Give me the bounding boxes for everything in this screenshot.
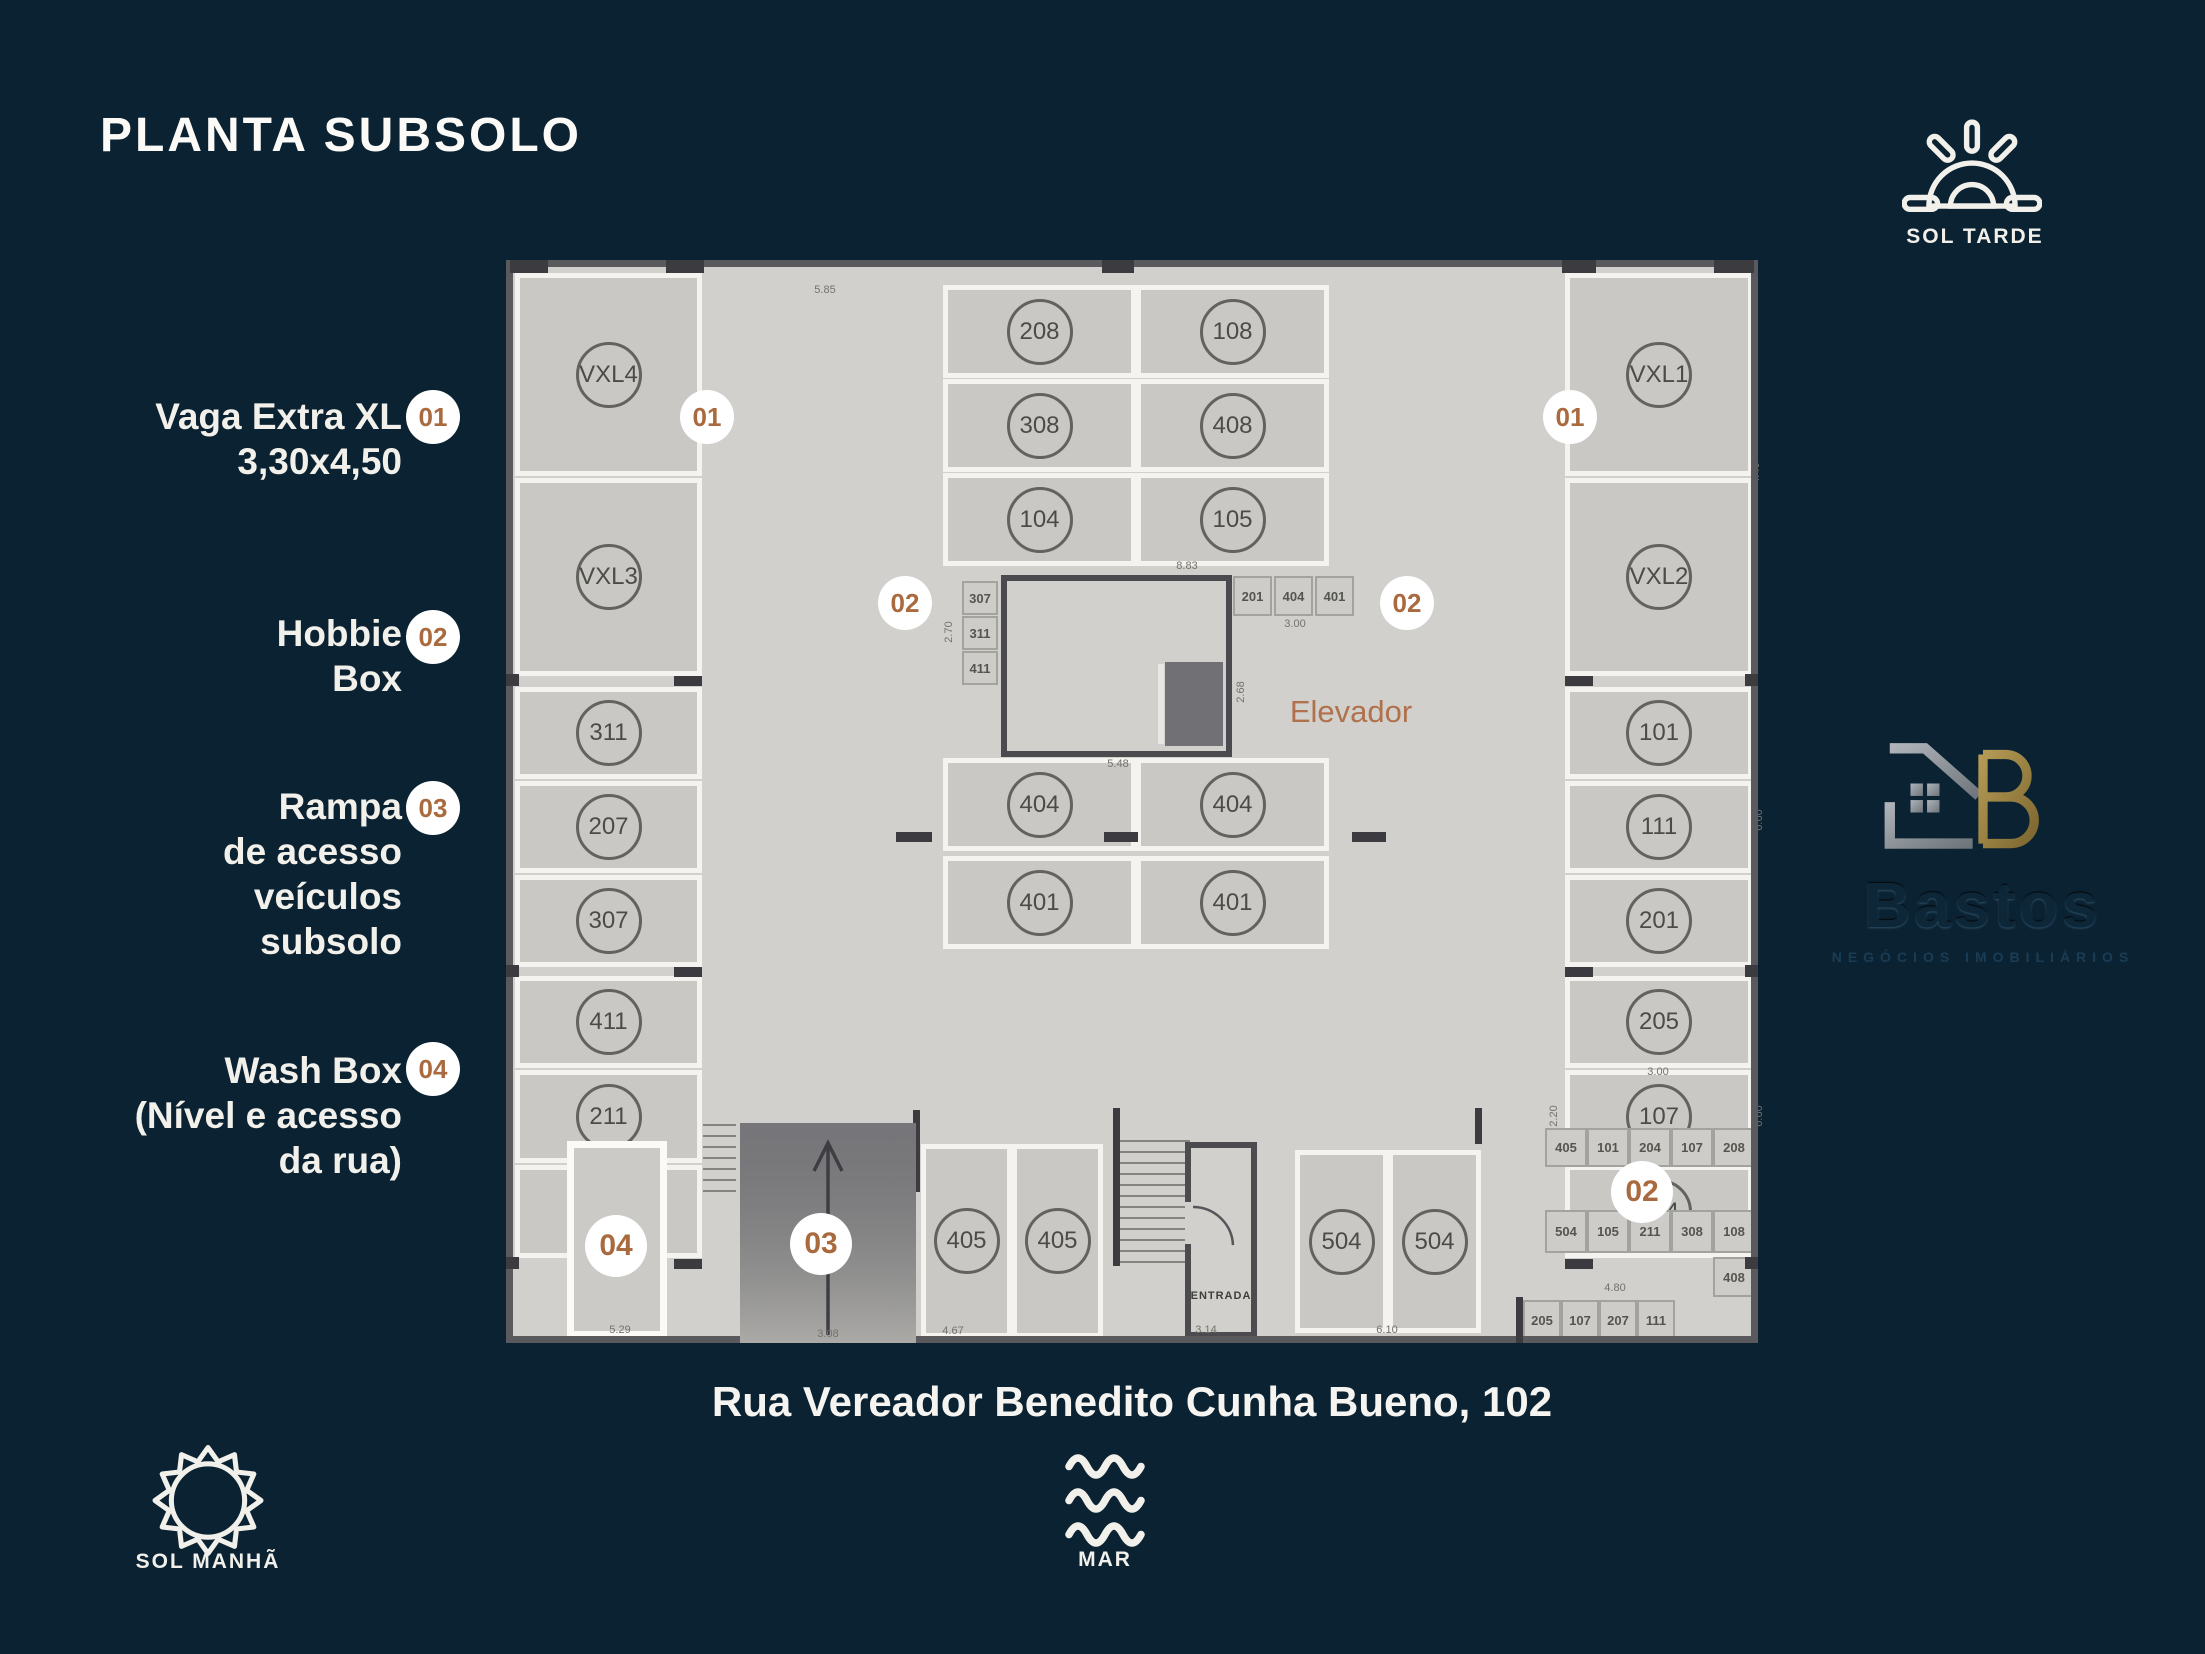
wall-pillar	[1745, 965, 1758, 977]
legend-line: (Nível e acesso	[62, 1093, 402, 1138]
parking-stall: 201	[1565, 875, 1753, 967]
hobbie-box-number: 207	[1607, 1313, 1629, 1328]
street-address: Rua Vereador Benedito Cunha Bueno, 102	[712, 1378, 1552, 1426]
hobbie-box-number: 204	[1639, 1140, 1661, 1155]
parking-stall: 207	[515, 781, 702, 873]
hobbie-box: 107	[1671, 1128, 1713, 1167]
parking-stall: 405	[921, 1144, 1012, 1338]
stall-number: 411	[576, 989, 642, 1055]
parking-stall: VXL1	[1565, 273, 1753, 476]
sea-waves-icon	[1063, 1451, 1147, 1556]
stall-number: VXL2	[1626, 544, 1692, 610]
legend-line: 3,30x4,50	[62, 439, 402, 484]
hobbie-box-number: 201	[1242, 589, 1264, 604]
hobbie-box-number: 504	[1555, 1224, 1577, 1239]
parking-stall: 101	[1565, 687, 1753, 779]
parking-stall: 504	[1295, 1150, 1388, 1333]
legend-line: de acesso	[62, 829, 402, 874]
hobbie-box: 108	[1713, 1210, 1755, 1253]
wall-segment	[1475, 1108, 1482, 1144]
wall-pillar	[666, 260, 704, 273]
wall-pillar	[1745, 674, 1758, 686]
stall-number: 408	[1200, 393, 1266, 459]
hobbie-box-number: 408	[1723, 1270, 1745, 1285]
elevator-door	[1158, 664, 1164, 744]
stall-number: 105	[1200, 487, 1266, 553]
plan-badge-01-right: 01	[1543, 390, 1597, 444]
hobbie-box-number: 404	[1283, 589, 1305, 604]
parking-stall: 404	[1136, 758, 1329, 851]
stall-number: 311	[576, 700, 642, 766]
stall-number: 205	[1626, 989, 1692, 1055]
wall-pillar	[674, 676, 702, 686]
side-stairs	[703, 1121, 736, 1192]
sun-icon	[152, 1445, 264, 1562]
dimension-label: 6.60	[1753, 1105, 1765, 1126]
hobbie-box: 405	[1545, 1128, 1587, 1167]
parking-stall: 401	[943, 856, 1136, 949]
hobbie-box-number: 107	[1681, 1140, 1703, 1155]
legend-line: Wash Box	[62, 1048, 402, 1093]
hobbie-box-number: 105	[1597, 1224, 1619, 1239]
plan-badge-02-core-right: 02	[1380, 576, 1434, 630]
hobbie-box: 111	[1637, 1300, 1675, 1340]
stall-number: 401	[1007, 870, 1073, 936]
legend-item-vaga-extra-xl: Vaga Extra XL 3,30x4,50	[62, 394, 402, 484]
legend-line: Rampa	[62, 784, 402, 829]
dimension-label: 2.70	[943, 621, 955, 642]
plan-badge-04-washbox: 04	[585, 1215, 647, 1277]
stall-number: 401	[1200, 870, 1266, 936]
dimension-label: 4.80	[1604, 1282, 1625, 1294]
hobbie-box-number: 211	[1640, 1224, 1661, 1239]
hobbie-box-number: 411	[970, 661, 991, 676]
door-arc	[1191, 1205, 1237, 1252]
plan-badge-03-ramp: 03	[790, 1213, 852, 1275]
parking-stall: 411	[515, 976, 702, 1068]
legend-badge-04: 04	[406, 1042, 460, 1096]
plan-badge-01-left: 01	[680, 390, 734, 444]
page-title: PLANTA SUBSOLO	[100, 108, 582, 163]
plan-badge-02-grid: 02	[1611, 1161, 1673, 1223]
wall-pillar	[506, 674, 519, 686]
stall-number: 405	[934, 1208, 1000, 1274]
parking-stall: 308	[943, 379, 1136, 472]
legend-line: subsolo	[62, 919, 402, 964]
stall-number: 201	[1626, 888, 1692, 954]
parking-stall: 504	[1388, 1150, 1481, 1333]
stall-number: VXL4	[576, 342, 642, 408]
sunset-icon	[1902, 120, 2042, 225]
hobbie-box-number: 107	[1569, 1313, 1591, 1328]
hobbie-box: 107	[1561, 1300, 1599, 1340]
stall-number: 108	[1200, 299, 1266, 365]
wall-pillar	[1565, 1259, 1593, 1269]
wall-pillar	[1352, 832, 1386, 842]
bastos-logo-subtitle: NEGÓCIOS IMOBILIÁRIOS	[1832, 949, 2135, 965]
hobbie-box: 205	[1523, 1300, 1561, 1340]
stall-number: VXL3	[576, 544, 642, 610]
dimension-label: 3.00	[1284, 618, 1305, 630]
dimension-label: 5.85	[814, 284, 835, 296]
parking-stall: VXL4	[515, 273, 702, 476]
stall-number: 111	[1626, 794, 1692, 860]
parking-stall: VXL3	[515, 478, 702, 676]
stall-number: 207	[576, 794, 642, 860]
wall-pillar	[506, 1257, 519, 1269]
dimension-label: 5.29	[609, 1324, 630, 1336]
dimension-label: 3.14	[1195, 1324, 1216, 1336]
legend-line: Hobbie	[62, 611, 402, 656]
stall-number: 208	[1007, 299, 1073, 365]
wall-pillar	[1745, 1257, 1758, 1269]
wall-pillar	[1104, 832, 1138, 842]
wall-segment	[1516, 1297, 1523, 1343]
stall-number: 104	[1007, 487, 1073, 553]
wall-pillar	[674, 1259, 702, 1269]
legend-item-rampa: Rampa de acesso veículos subsolo	[62, 784, 402, 964]
hobbie-box: 411	[962, 651, 998, 685]
dimension-label: 8.83	[1176, 560, 1197, 572]
wall-pillar	[1714, 260, 1754, 273]
wall-segment	[1113, 1108, 1120, 1266]
parking-stall: 405	[1012, 1144, 1103, 1338]
hobbie-box: 308	[1671, 1210, 1713, 1253]
hobbie-box-number: 308	[1681, 1224, 1703, 1239]
hobbie-box: 401	[1315, 576, 1354, 616]
stall-number: 504	[1309, 1209, 1375, 1275]
hobbie-box-number: 111	[1646, 1313, 1666, 1328]
hobbie-box: 404	[1274, 576, 1313, 616]
legend-line: da rua)	[62, 1138, 402, 1183]
stall-number: 307	[576, 888, 642, 954]
hobbie-box: 201	[1233, 576, 1272, 616]
dimension-label: 6.60	[1753, 809, 1765, 830]
parking-stall: 108	[1136, 285, 1329, 378]
dimension-label: 2.20	[1548, 1105, 1560, 1126]
dimension-label: 6.10	[1376, 1324, 1397, 1336]
stall-number: VXL1	[1626, 342, 1692, 408]
legend-item-hobbie-box: Hobbie Box	[62, 611, 402, 701]
legend-badge-01: 01	[406, 390, 460, 444]
parking-stall: 401	[1136, 856, 1329, 949]
elevator-car	[1165, 662, 1223, 746]
dimension-label: 3.08	[817, 1328, 838, 1340]
mar-label: MAR	[1078, 1548, 1132, 1572]
wall-pillar	[1562, 260, 1596, 273]
hobbie-box-number: 208	[1723, 1140, 1745, 1155]
parking-stall: 311	[515, 687, 702, 779]
entrada-label: ENTRADA	[1191, 1290, 1252, 1302]
dimension-label: 5.48	[1107, 758, 1128, 770]
parking-stall: VXL2	[1565, 478, 1753, 676]
hobbie-box: 311	[962, 616, 998, 650]
entrance-stairs	[1120, 1137, 1190, 1263]
hobbie-box-number: 307	[969, 591, 991, 606]
dimension-label: 3.00	[1647, 1066, 1668, 1078]
hobbie-box-number: 108	[1723, 1224, 1745, 1239]
floor-plan: VXL4 VXL3 311 207 307 411 211 502 VXL1 V…	[506, 260, 1758, 1343]
legend-line: veículos	[62, 874, 402, 919]
parking-stall: 208	[943, 285, 1136, 378]
parking-stall: 105	[1136, 473, 1329, 566]
stall-number: 101	[1626, 700, 1692, 766]
stall-number: 308	[1007, 393, 1073, 459]
elevador-label: Elevador	[1290, 694, 1412, 730]
wall-pillar	[510, 260, 548, 273]
hobbie-box-number: 205	[1531, 1313, 1553, 1328]
stall-number: 211	[576, 1084, 642, 1150]
legend-badge-03: 03	[406, 781, 460, 835]
wall-pillar	[674, 967, 702, 977]
legend-line: Box	[62, 656, 402, 701]
hobbie-box: 504	[1545, 1210, 1587, 1253]
parking-stall: 205	[1565, 976, 1753, 1068]
legend-item-wash-box: Wash Box (Nível e acesso da rua)	[62, 1048, 402, 1183]
bastos-logo-name: Bastos	[1864, 868, 2101, 942]
hobbie-box-number: 311	[970, 626, 991, 641]
hobbie-box: 208	[1713, 1128, 1755, 1167]
dimension-label: 4.40	[1750, 462, 1762, 483]
stall-number: 504	[1402, 1209, 1468, 1275]
planta-subsolo-page: PLANTA SUBSOLO Vaga Extra XL 3,30x4,50 0…	[0, 0, 2205, 1654]
wall-pillar	[506, 965, 519, 977]
dimension-label: 2.68	[1235, 681, 1247, 702]
parking-stall: 104	[943, 473, 1136, 566]
wall-pillar	[1565, 676, 1593, 686]
wall-pillar	[1102, 260, 1134, 273]
wall-pillar	[1565, 967, 1593, 977]
sol-tarde-label: SOL TARDE	[1906, 225, 2043, 249]
parking-stall: 307	[515, 875, 702, 967]
stall-number: 405	[1025, 1208, 1091, 1274]
legend-badge-02: 02	[406, 610, 460, 664]
hobbie-box: 101	[1587, 1128, 1629, 1167]
dimension-label: 4.67	[942, 1325, 963, 1337]
hobbie-box: 307	[962, 581, 998, 615]
stall-number: 404	[1200, 772, 1266, 838]
parking-stall: 408	[1136, 379, 1329, 472]
hobbie-box-number: 405	[1555, 1140, 1577, 1155]
hobbie-box-number: 101	[1597, 1140, 1619, 1155]
wall-pillar	[896, 832, 932, 842]
hobbie-box: 207	[1599, 1300, 1637, 1340]
hobbie-box-number: 401	[1324, 589, 1346, 604]
legend-line: Vaga Extra XL	[62, 394, 402, 439]
sol-manha-label: SOL MANHÃ	[136, 1550, 281, 1574]
parking-stall: 111	[1565, 781, 1753, 873]
stall-number: 404	[1007, 772, 1073, 838]
plan-badge-02-core-left: 02	[878, 576, 932, 630]
